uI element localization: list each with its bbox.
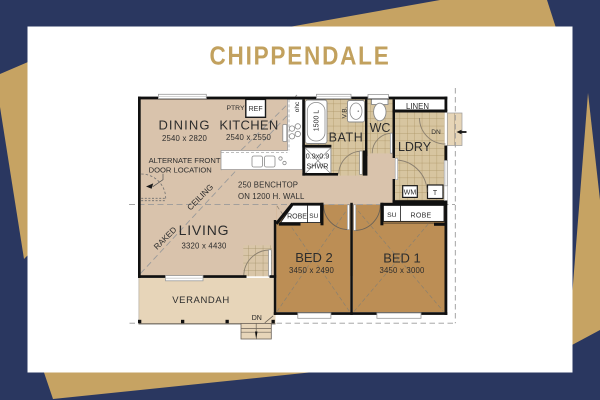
svg-text:250 BENCHTOP: 250 BENCHTOP <box>238 181 298 190</box>
svg-text:WM: WM <box>404 189 417 196</box>
svg-text:LIVING: LIVING <box>179 222 230 238</box>
svg-text:DN: DN <box>252 315 262 322</box>
svg-text:REF: REF <box>249 106 263 113</box>
svg-text:2540 x 2820: 2540 x 2820 <box>162 134 208 143</box>
svg-text:BATH: BATH <box>329 131 364 145</box>
svg-text:SU: SU <box>309 213 318 220</box>
svg-text:V.B.: V.B. <box>341 106 348 118</box>
svg-text:BED 2: BED 2 <box>295 250 333 265</box>
svg-text:LDRY: LDRY <box>398 140 432 154</box>
svg-text:3450 x 3000: 3450 x 3000 <box>379 266 425 275</box>
svg-text:ON 1200 H. WALL: ON 1200 H. WALL <box>238 192 305 201</box>
svg-text:SU: SU <box>387 212 397 219</box>
svg-text:SHWR: SHWR <box>307 161 329 170</box>
svg-text:ROBE: ROBE <box>287 214 307 221</box>
svg-text:ohc: ohc <box>294 101 301 112</box>
svg-text:DN: DN <box>431 129 441 136</box>
svg-text:CHIPPENDALE: CHIPPENDALE <box>210 43 391 71</box>
svg-text:DINING: DINING <box>158 118 210 133</box>
svg-text:1500 L: 1500 L <box>314 110 321 132</box>
svg-text:3450 x 2490: 3450 x 2490 <box>289 266 335 275</box>
svg-text:DOOR LOCATION: DOOR LOCATION <box>149 166 212 175</box>
svg-text:KITCHEN: KITCHEN <box>219 118 278 133</box>
svg-text:WC: WC <box>370 121 391 135</box>
svg-text:2540 x 2550: 2540 x 2550 <box>226 133 272 142</box>
svg-text:ALTERNATE FRONT: ALTERNATE FRONT <box>149 156 221 165</box>
svg-text:3320 x 4430: 3320 x 4430 <box>181 241 227 250</box>
svg-text:T: T <box>433 190 438 197</box>
svg-text:ROBE: ROBE <box>410 212 431 219</box>
svg-text:BED 1: BED 1 <box>383 251 421 266</box>
svg-text:VERANDAH: VERANDAH <box>172 295 230 306</box>
svg-text:0.9x0.9: 0.9x0.9 <box>306 152 330 161</box>
svg-text:LINEN: LINEN <box>406 102 429 111</box>
svg-text:PTRY: PTRY <box>226 105 244 112</box>
